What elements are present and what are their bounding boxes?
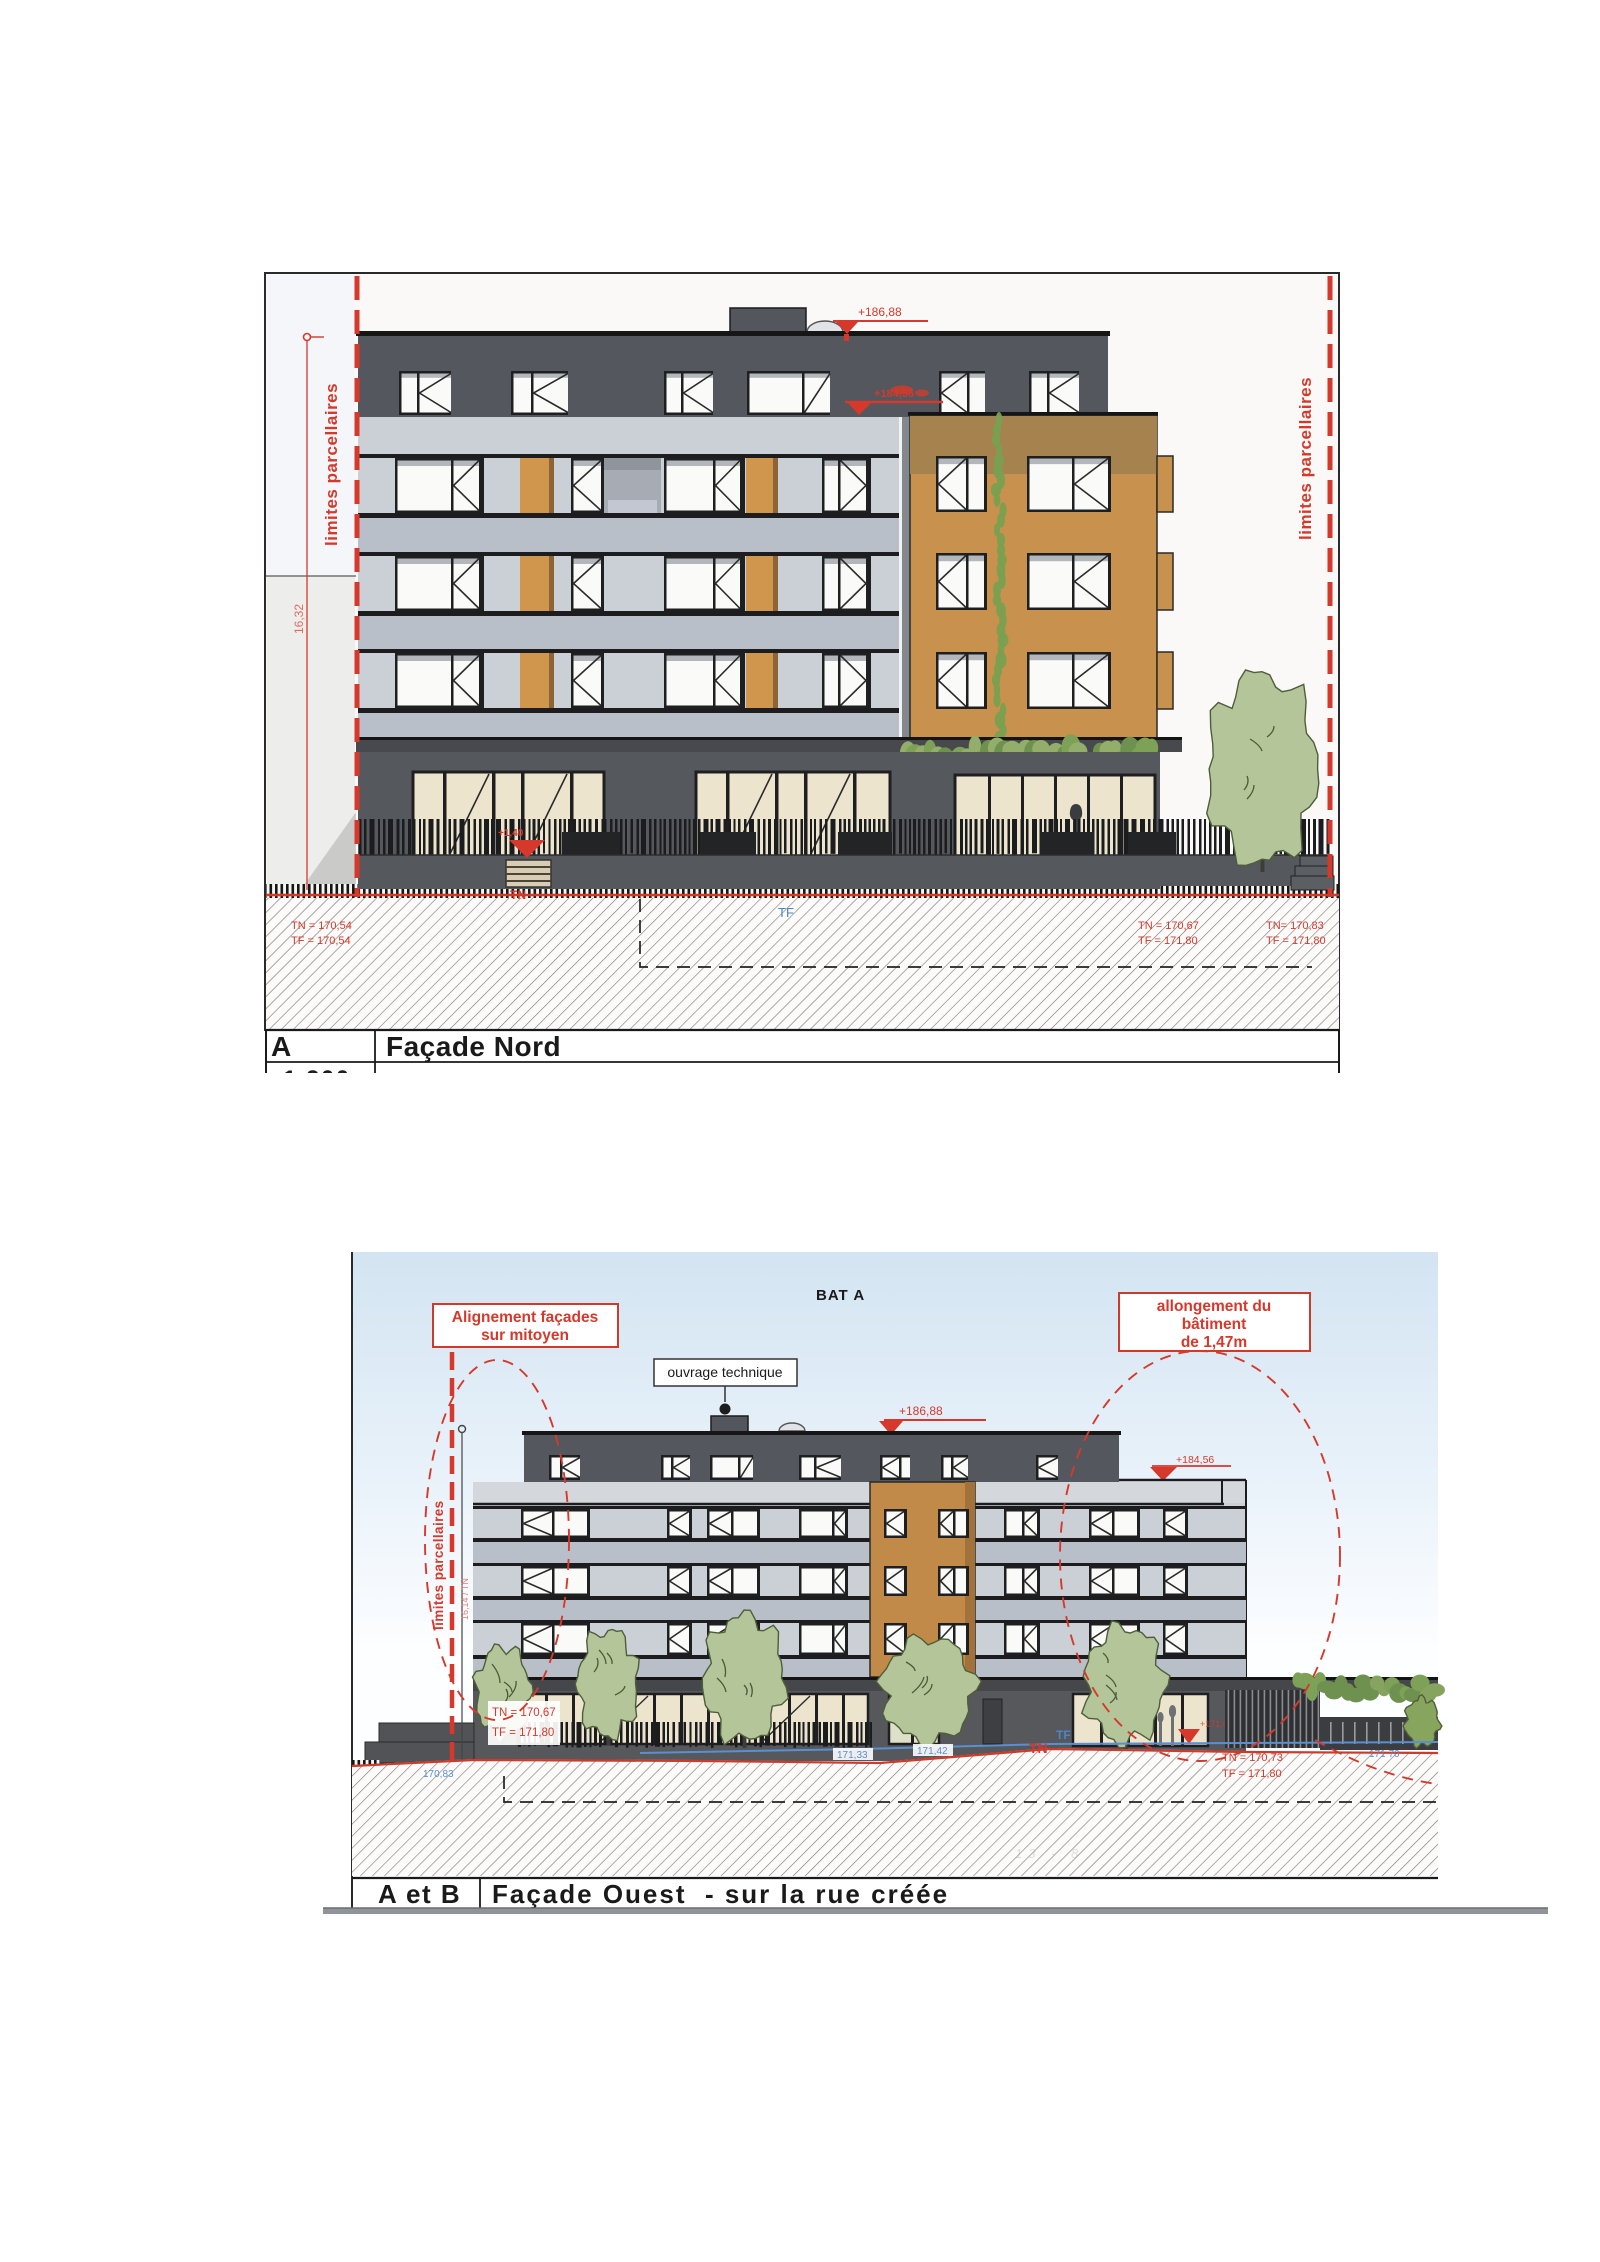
svg-text:1.200: 1.200 [283, 1066, 351, 1093]
svg-text:Façade Nord: Façade Nord [386, 1031, 561, 1062]
svg-text:limites parcellaires: limites parcellaires [431, 1500, 446, 1630]
svg-text:sur mitoyen: sur mitoyen [481, 1327, 569, 1344]
svg-text:TN = 170,73: TN = 170,73 [1222, 1752, 1283, 1764]
svg-text:+186,88: +186,88 [858, 305, 902, 319]
svg-text:de 1,47m: de 1,47m [1181, 1334, 1247, 1351]
svg-text:+184,56: +184,56 [1176, 1454, 1214, 1466]
svg-text:TF = 171,80: TF = 171,80 [1222, 1768, 1282, 1780]
svg-text:TF = 171,80: TF = 171,80 [492, 1727, 554, 1739]
svg-text:16,14 / TN: 16,14 / TN [460, 1578, 470, 1620]
svg-text:ouvrage technique: ouvrage technique [667, 1364, 782, 1380]
svg-text:+186,88: +186,88 [899, 1404, 943, 1418]
svg-text:TF = 170,54: TF = 170,54 [291, 935, 351, 947]
svg-text:TN = 170,67: TN = 170,67 [492, 1707, 556, 1719]
svg-text:A et B: A et B [378, 1879, 461, 1909]
svg-text:TN = 170,54: TN = 170,54 [291, 920, 352, 932]
svg-text:TF: TF [1056, 1728, 1071, 1742]
svg-text:Alignement façades: Alignement façades [452, 1309, 598, 1326]
svg-text:bâtiment: bâtiment [1182, 1316, 1247, 1333]
svg-text:13 - 8: 13 - 8 [1015, 1846, 1084, 1861]
svg-text:171 70: 171 70 [1369, 1749, 1400, 1760]
svg-text:TF = 171,80: TF = 171,80 [1138, 935, 1198, 947]
svg-text:+1,40: +1,40 [498, 828, 524, 839]
svg-text:BAT A: BAT A [816, 1287, 865, 1304]
svg-text:TN= 170,83: TN= 170,83 [1266, 920, 1324, 932]
svg-text:limites parcellaires: limites parcellaires [322, 383, 341, 546]
svg-text:TN: TN [1029, 1740, 1048, 1756]
svg-text:171,33: 171,33 [837, 1750, 868, 1761]
svg-text:A: A [271, 1031, 291, 1062]
svg-text:TN = 170,67: TN = 170,67 [1138, 920, 1199, 932]
svg-text:TF: TF [778, 905, 794, 920]
svg-text:allongement du: allongement du [1157, 1298, 1272, 1315]
svg-text:Façade Ouest - sur la rue cré: Façade Ouest - sur la rue créée [492, 1879, 949, 1909]
svg-text:TF = 171,80: TF = 171,80 [1266, 935, 1326, 947]
svg-text:170,83: 170,83 [423, 1769, 454, 1780]
svg-text:limites parcellaires: limites parcellaires [1296, 377, 1315, 540]
svg-text:16,32: 16,32 [292, 604, 306, 634]
svg-text:171,42: 171,42 [917, 1746, 948, 1757]
